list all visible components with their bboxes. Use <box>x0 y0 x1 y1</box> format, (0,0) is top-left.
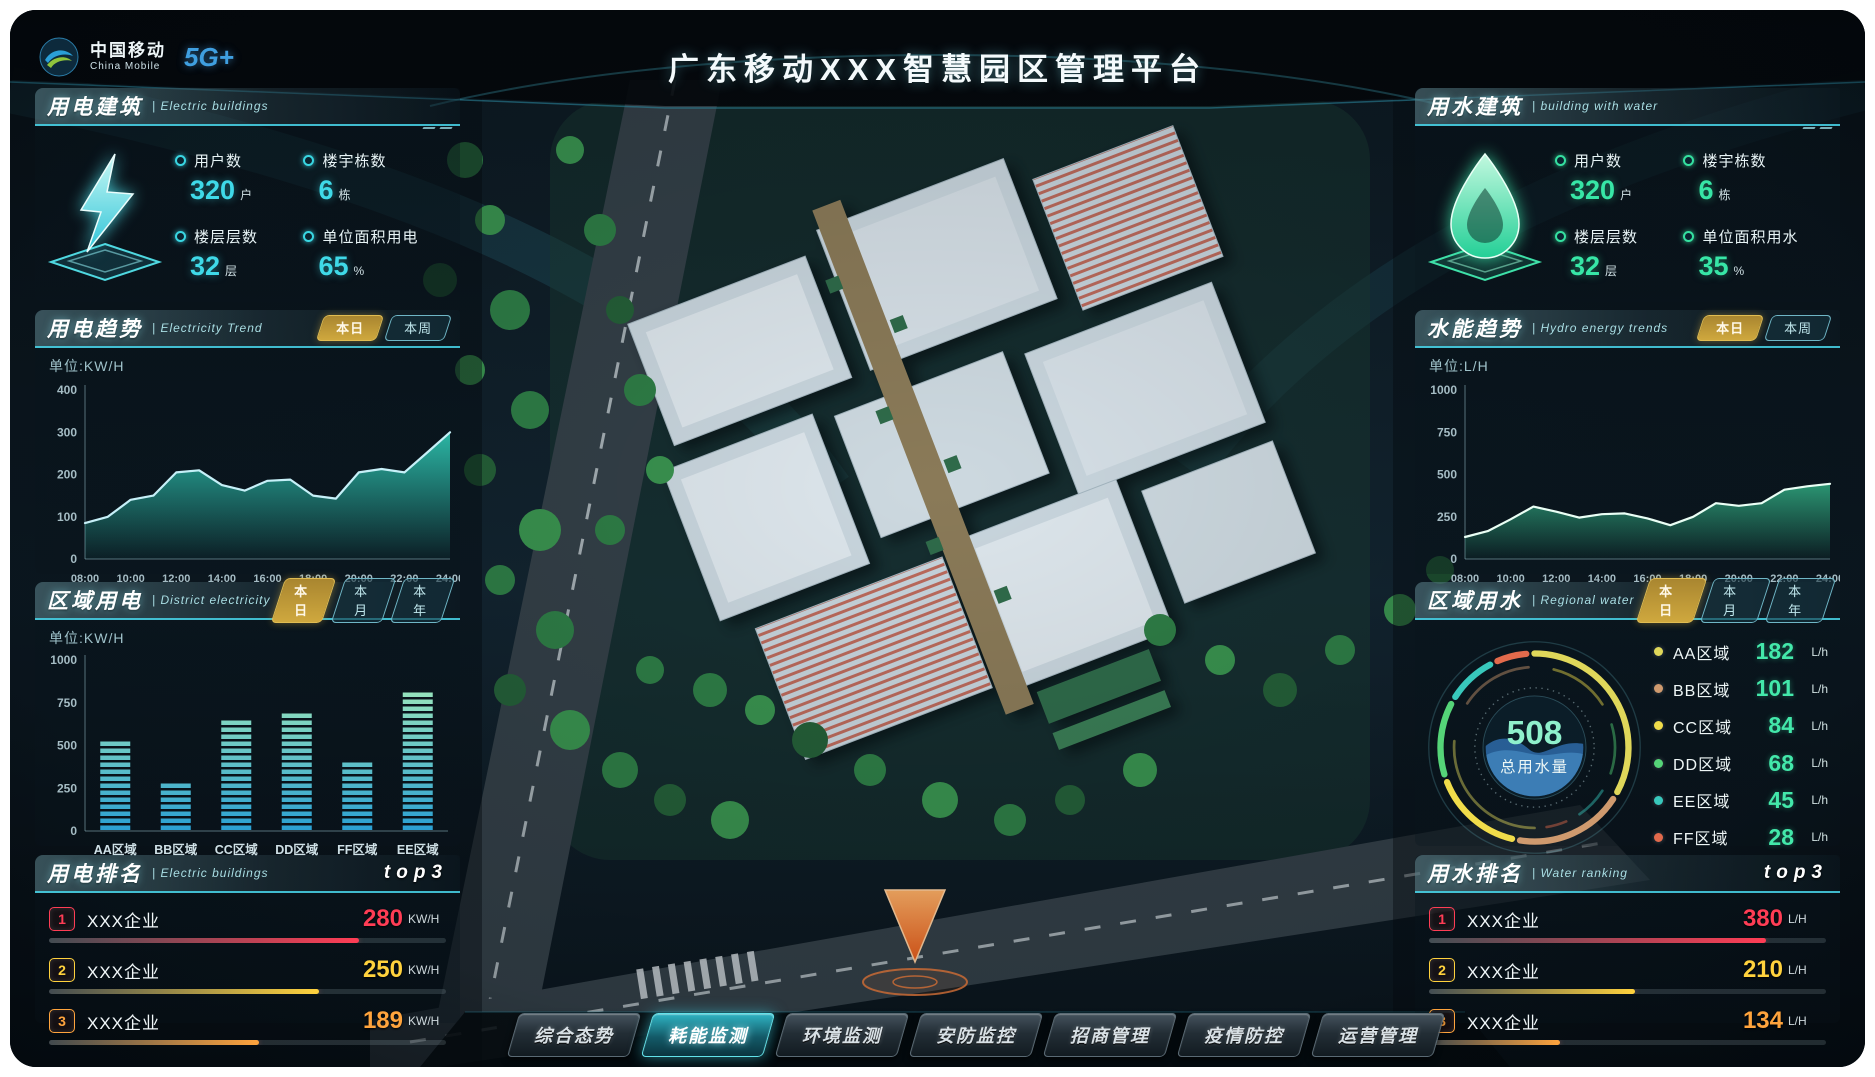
stat-dot-icon <box>1555 231 1566 242</box>
svg-text:总用水量: 总用水量 <box>1500 758 1569 776</box>
tab-today[interactable]: 本日 <box>1696 315 1764 341</box>
panel-subtitle: | building with water <box>1532 99 1658 113</box>
panel-electric-ranking: 用电排名 | Electric buildings top3 1 XXX企业 2… <box>35 855 460 1023</box>
panel-title: 用水排名 <box>1427 858 1523 888</box>
stat-floors: 楼层层数 32层 <box>175 226 295 282</box>
stat-water-per-area: 单位面积用水 35% <box>1683 226 1834 282</box>
rank-row-1: 1 XXX企业 280 KW/H <box>49 905 446 943</box>
tab-this-month[interactable]: 本月 <box>1700 578 1771 623</box>
svg-text:508: 508 <box>1507 715 1563 752</box>
top3-badge: top3 <box>384 862 448 884</box>
tab-today[interactable]: 本日 <box>1635 578 1706 623</box>
rank-badge: 3 <box>49 1009 75 1033</box>
rank-badge: 1 <box>1429 907 1455 931</box>
tab-this-week[interactable]: 本周 <box>384 315 452 341</box>
nav-energy-monitoring[interactable]: 耗能监测 <box>640 1013 775 1057</box>
tab-this-month[interactable]: 本月 <box>330 578 396 623</box>
water-trend-tabs: 本日 本周 <box>1692 315 1828 341</box>
water-drop-icon <box>1421 140 1549 292</box>
legend-item: CC区域 84 L/h <box>1654 712 1828 739</box>
panel-district-electric: 区域用电 | District electricity 本日 本月 本年 单位:… <box>35 582 460 846</box>
rank-row-3: 3 XXX企业 189 KW/H <box>49 1007 446 1045</box>
stat-dot-icon <box>303 231 314 242</box>
legend-item: EE区域 45 L/h <box>1654 787 1828 814</box>
water-trend-chart: 0250500750100008:0010:0012:0014:0016:001… <box>1415 376 1840 591</box>
bottom-nav: 综合态势 耗能监测 环境监测 安防监控 招商管理 疫情防控 运营管理 <box>513 1013 1439 1057</box>
rank-row-1: 1 XXX企业 380 L/H <box>1429 905 1826 943</box>
svg-text:500: 500 <box>1437 468 1457 482</box>
stat-buildings: 楼宇栋数 6栋 <box>1683 150 1834 206</box>
stat-users: 用户数 320户 <box>1555 150 1675 206</box>
stat-dot-icon <box>1555 155 1566 166</box>
rank-badge: 2 <box>1429 958 1455 982</box>
panel-subtitle: | Electric buildings <box>152 866 269 880</box>
legend-dot-icon <box>1654 833 1663 842</box>
tab-this-week[interactable]: 本周 <box>1764 315 1832 341</box>
nav-environment-monitoring[interactable]: 环境监测 <box>774 1013 909 1057</box>
svg-text:200: 200 <box>57 468 77 482</box>
panel-water-building: 用水建筑 | building with water 用户数 320户 楼宇栋数… <box>1415 88 1840 302</box>
regional-water-tabs: 本日 本月 本年 <box>1635 578 1829 623</box>
panel-electric-building: 用电建筑 | Electric buildings 用户数 320户 楼宇栋数 … <box>35 88 460 302</box>
rank-row-3: 3 XXX企业 134 L/H <box>1429 1007 1826 1045</box>
svg-text:0: 0 <box>70 824 77 838</box>
rank-row-2: 2 XXX企业 250 KW/H <box>49 956 446 994</box>
panel-subtitle: | Electric buildings <box>152 99 269 113</box>
stat-dot-icon <box>303 155 314 166</box>
rank-bar <box>1429 1040 1826 1045</box>
rank-bar <box>49 1040 446 1045</box>
regional-water-legend: AA区域 182 L/h BB区域 101 L/h CC区域 84 L/h <box>1652 630 1834 865</box>
rank-bar <box>1429 938 1826 943</box>
legend-dot-icon <box>1654 796 1663 805</box>
electric-trend-tabs: 本日 本周 <box>312 315 448 341</box>
svg-text:1000: 1000 <box>1430 383 1457 397</box>
panel-title: 水能趋势 <box>1427 313 1523 343</box>
legend-item: BB区域 101 L/h <box>1654 675 1828 702</box>
panel-subtitle: | District electricity <box>152 593 270 607</box>
svg-text:250: 250 <box>57 781 77 795</box>
unit-label: 单位:KW/H <box>35 348 460 376</box>
stat-dot-icon <box>1683 231 1694 242</box>
district-electricity-bar-chart: 02505007501000AA区域BB区域CC区域DD区域FF区域EE区域 <box>35 648 460 863</box>
rank-row-2: 2 XXX企业 210 L/H <box>1429 956 1826 994</box>
legend-dot-icon <box>1654 647 1663 656</box>
panel-title: 用电趋势 <box>47 313 143 343</box>
stat-electricity-per-area: 单位面积用电 65% <box>303 226 454 282</box>
svg-text:400: 400 <box>57 383 77 397</box>
legend-dot-icon <box>1654 721 1663 730</box>
svg-text:500: 500 <box>57 739 77 753</box>
legend-item: FF区域 28 L/h <box>1654 824 1828 851</box>
panel-title: 用水建筑 <box>1427 91 1523 121</box>
panel-title: 区域用电 <box>47 585 143 615</box>
svg-text:1000: 1000 <box>50 653 77 667</box>
panel-water-ranking-header: 用水排名 | Water ranking top3 <box>1415 855 1840 893</box>
panel-electric-trend-header: 用电趋势 | Electricity Trend 本日 本周 <box>35 310 460 348</box>
panel-regional-water-header: 区域用水 | Regional water 本日 本月 本年 <box>1415 582 1840 620</box>
legend-item: AA区域 182 L/h <box>1654 638 1828 665</box>
stat-users: 用户数 320户 <box>175 150 295 206</box>
legend-dot-icon <box>1654 684 1663 693</box>
rank-bar <box>49 989 446 994</box>
stat-dot-icon <box>1683 155 1694 166</box>
electricity-trend-chart: 010020030040008:0010:0012:0014:0016:0018… <box>35 376 460 591</box>
district-electric-tabs: 本日 本月 本年 <box>270 578 448 623</box>
legend-dot-icon <box>1654 759 1663 768</box>
stat-buildings: 楼宇栋数 6栋 <box>303 150 454 206</box>
panel-subtitle: | Electricity Trend <box>152 321 263 335</box>
nav-investment-management[interactable]: 招商管理 <box>1042 1013 1177 1057</box>
lightning-icon <box>41 140 169 292</box>
nav-overview[interactable]: 综合态势 <box>506 1013 641 1057</box>
rank-badge: 2 <box>49 958 75 982</box>
stat-dot-icon <box>175 231 186 242</box>
header-decoration <box>1803 127 1832 129</box>
rank-badge: 1 <box>49 907 75 931</box>
panel-water-trend: 水能趋势 | Hydro energy trends 本日 本周 单位:L/H … <box>1415 310 1840 574</box>
svg-text:0: 0 <box>1450 552 1457 566</box>
panel-water-building-header: 用水建筑 | building with water <box>1415 88 1840 126</box>
panel-electric-building-header: 用电建筑 | Electric buildings <box>35 88 460 126</box>
total-water-gauge: 508总用水量 <box>1417 630 1652 865</box>
panel-district-electric-header: 区域用电 | District electricity 本日 本月 本年 <box>35 582 460 620</box>
panel-regional-water: 区域用水 | Regional water 本日 本月 本年 508总用水量 A… <box>1415 582 1840 846</box>
svg-text:750: 750 <box>1437 425 1457 439</box>
panel-title: 区域用水 <box>1427 585 1523 615</box>
panel-subtitle: | Regional water <box>1532 593 1635 607</box>
tab-this-year[interactable]: 本年 <box>390 578 456 623</box>
tab-today[interactable]: 本日 <box>316 315 384 341</box>
panel-subtitle: | Hydro energy trends <box>1532 321 1668 335</box>
svg-text:0: 0 <box>70 552 77 566</box>
panel-water-ranking: 用水排名 | Water ranking top3 1 XXX企业 380 L/… <box>1415 855 1840 1023</box>
panel-title: 用电排名 <box>47 858 143 888</box>
svg-text:300: 300 <box>57 425 77 439</box>
svg-text:250: 250 <box>1437 510 1457 524</box>
rank-bar <box>1429 989 1826 994</box>
stat-floors: 楼层层数 32层 <box>1555 226 1675 282</box>
tab-this-year[interactable]: 本年 <box>1764 578 1835 623</box>
panel-water-trend-header: 水能趋势 | Hydro energy trends 本日 本周 <box>1415 310 1840 348</box>
panel-title: 用电建筑 <box>47 91 143 121</box>
panel-electric-ranking-header: 用电排名 | Electric buildings top3 <box>35 855 460 893</box>
panel-subtitle: | Water ranking <box>1532 866 1628 880</box>
svg-text:100: 100 <box>57 510 77 524</box>
legend-item: DD区域 68 L/h <box>1654 750 1828 777</box>
unit-label: 单位:L/H <box>1415 348 1840 376</box>
tab-today[interactable]: 本日 <box>271 578 337 623</box>
svg-text:750: 750 <box>57 696 77 710</box>
top3-badge: top3 <box>1764 862 1828 884</box>
panel-electric-trend: 用电趋势 | Electricity Trend 本日 本周 单位:KW/H 0… <box>35 310 460 574</box>
dashboard-frame: 中国移动 China Mobile 5G+ 广东移动XXX智慧园区管理平台 用电… <box>10 10 1865 1067</box>
rank-bar <box>49 938 446 943</box>
header-decoration <box>423 127 452 129</box>
unit-label: 单位:KW/H <box>35 620 460 648</box>
nav-security-monitoring[interactable]: 安防监控 <box>908 1013 1043 1057</box>
nav-operation-management[interactable]: 运营管理 <box>1310 1013 1445 1057</box>
stat-dot-icon <box>175 155 186 166</box>
nav-epidemic-prevention[interactable]: 疫情防控 <box>1176 1013 1311 1057</box>
